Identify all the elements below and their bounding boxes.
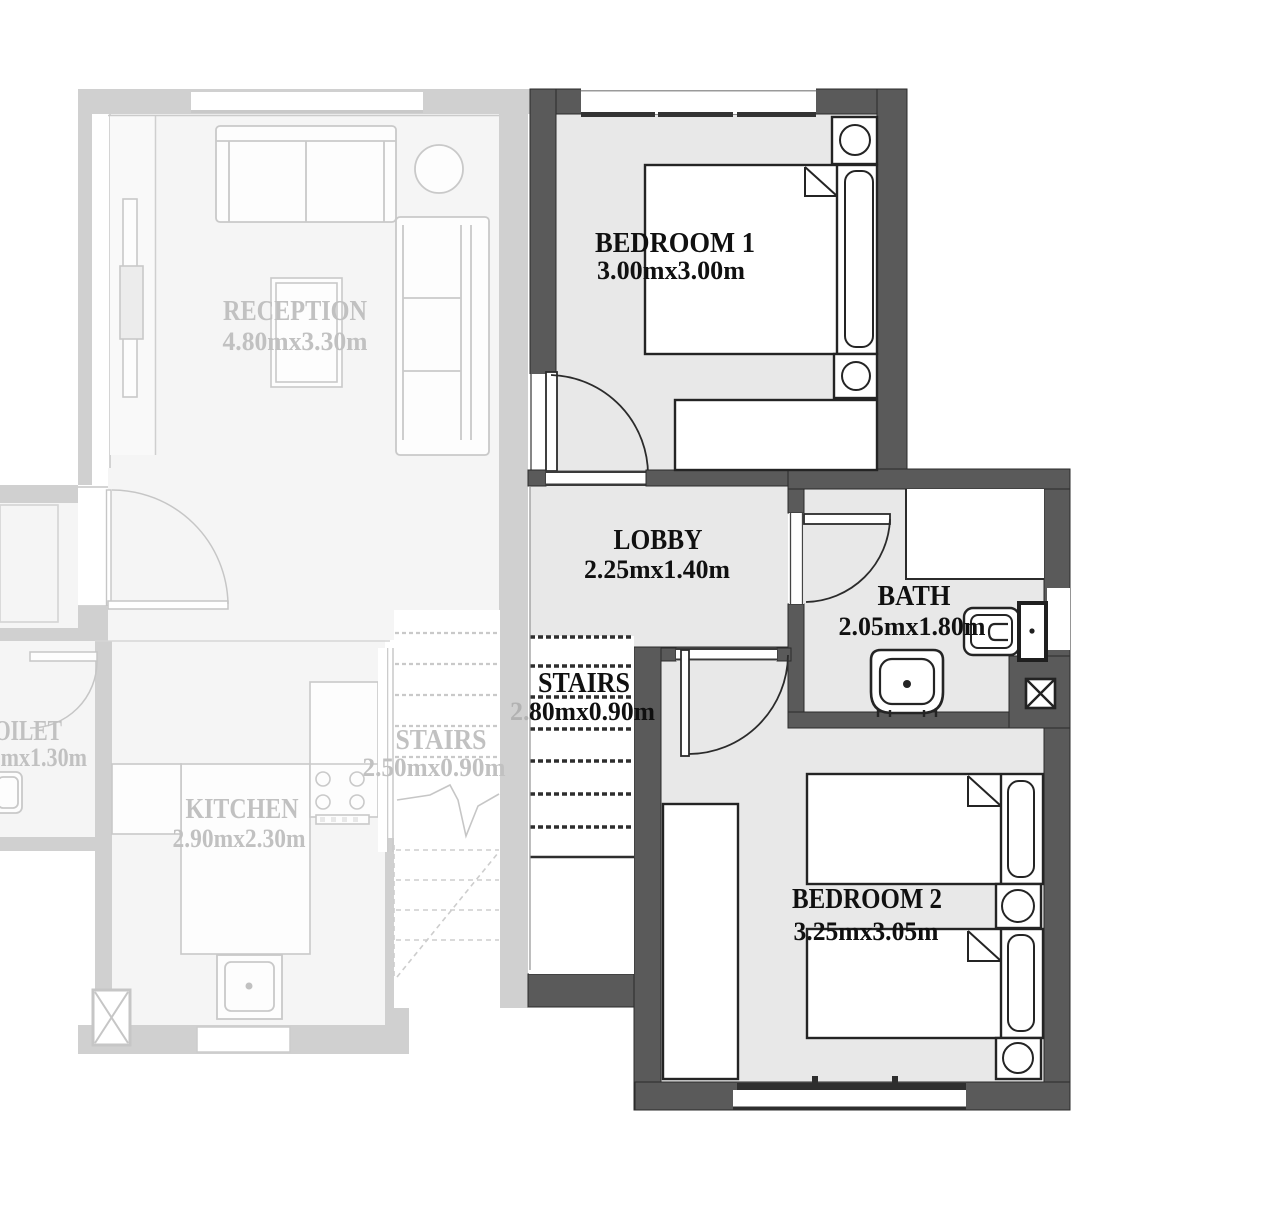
- svg-text:3.00mx3.00m: 3.00mx3.00m: [597, 256, 745, 285]
- svg-text:BEDROOM 1: BEDROOM 1: [595, 228, 755, 259]
- svg-text:RECEPTION: RECEPTION: [223, 296, 367, 327]
- svg-text:2.: 2.: [510, 697, 530, 726]
- svg-text:BATH: BATH: [878, 581, 951, 612]
- svg-text:STAIRS: STAIRS: [538, 668, 630, 699]
- svg-text:80mx0.90m: 80mx0.90m: [529, 697, 655, 726]
- svg-text:4.80mx3.30m: 4.80mx3.30m: [223, 327, 368, 356]
- svg-text:2.90mx2.30m: 2.90mx2.30m: [173, 824, 306, 853]
- svg-text:1.50mx1.30m: 1.50mx1.30m: [0, 743, 87, 772]
- svg-text:3.25mx3.05m: 3.25mx3.05m: [794, 917, 939, 946]
- svg-text:2.25mx1.40m: 2.25mx1.40m: [584, 555, 730, 584]
- svg-text:2.05mx1.80m: 2.05mx1.80m: [839, 612, 986, 641]
- svg-text:LOBBY: LOBBY: [614, 525, 703, 556]
- svg-text:STAIRS: STAIRS: [396, 725, 487, 756]
- svg-text:2.50mx0.90m: 2.50mx0.90m: [363, 753, 506, 782]
- svg-text:BEDROOM 2: BEDROOM 2: [792, 884, 942, 915]
- svg-text:KITCHEN: KITCHEN: [186, 794, 299, 825]
